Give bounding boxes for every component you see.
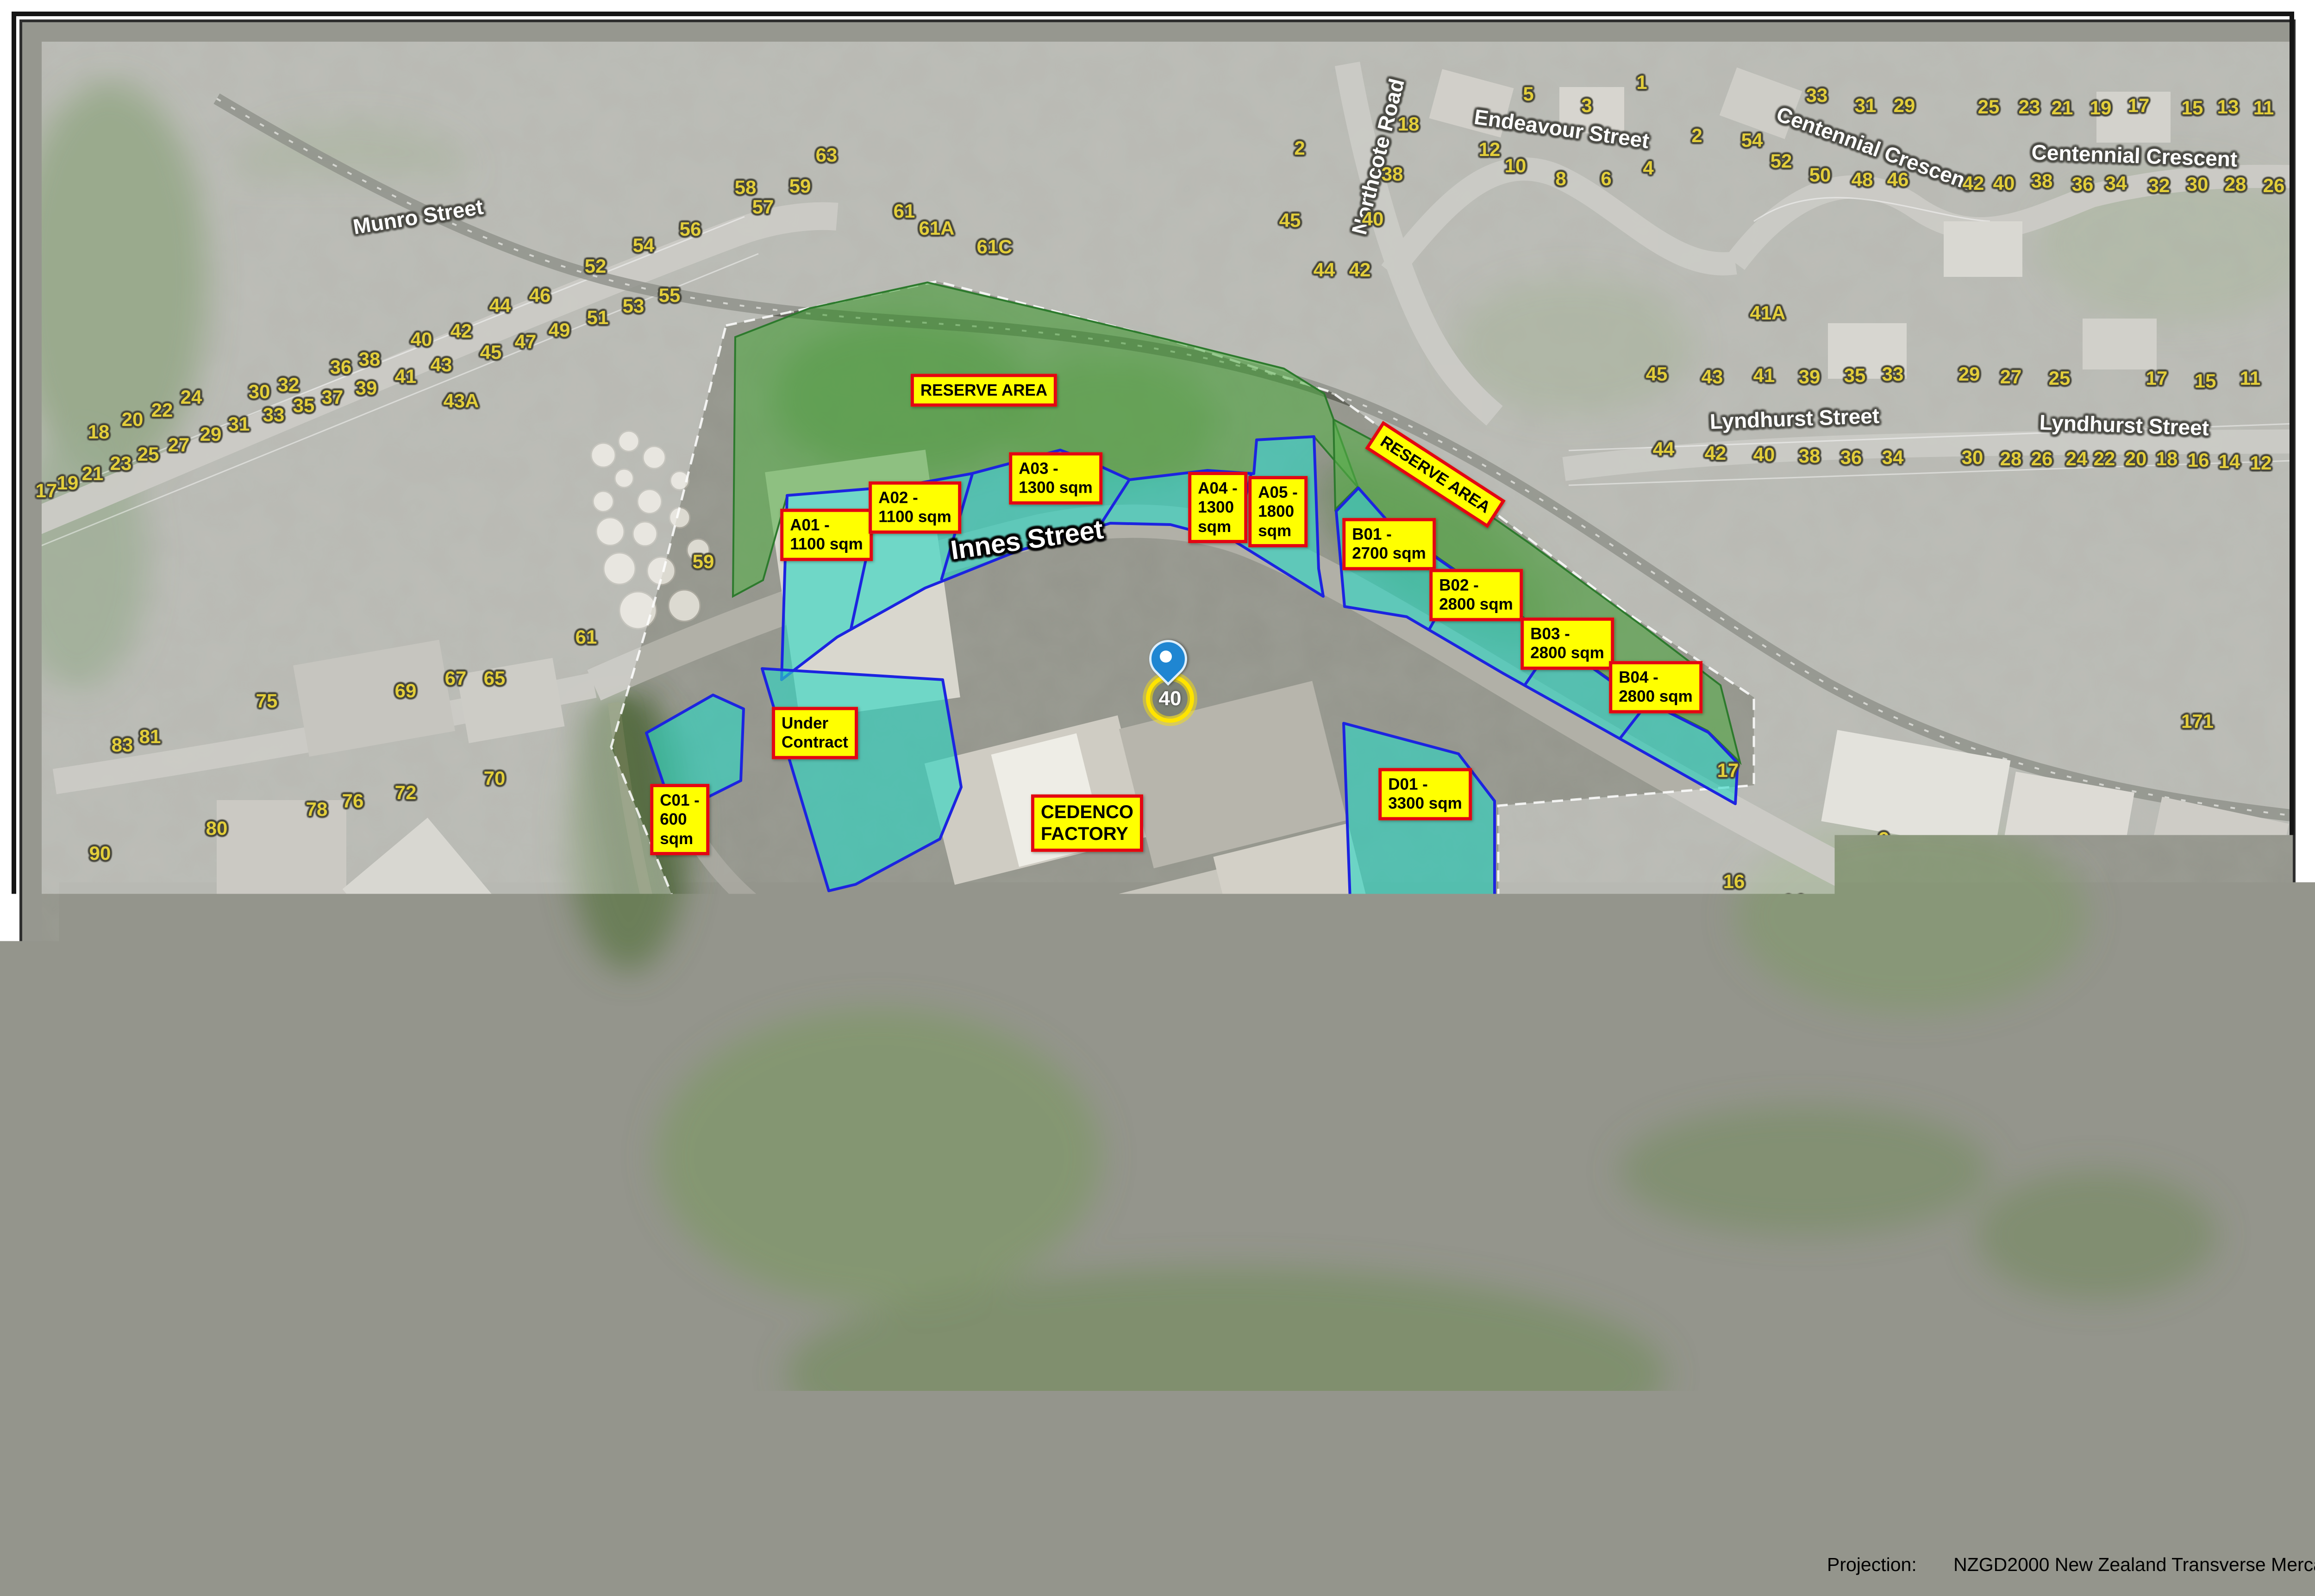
- date-label: Date:: [1827, 1513, 1872, 1535]
- created-by-label: Created by:: [1827, 1467, 1925, 1489]
- projection-row: Projection: NZGD2000 New Zealand Transve…: [1827, 1554, 2315, 1576]
- title-block-divider-2: [1785, 1396, 1788, 1572]
- scale-value: 2,257: [2100, 1424, 2147, 1446]
- scale-row: Indicative Map Scale: 1: 2,257 @ A3: [1827, 1424, 2259, 1446]
- title-block-divider-1: [1331, 1396, 1333, 1572]
- title-block: CEDENCO Sub-Division Master Plan Additio…: [19, 1394, 2296, 1575]
- north-arrow-icon: [2217, 1414, 2277, 1490]
- scale-label: Indicative Map Scale:: [1827, 1424, 2008, 1446]
- page-title: CEDENCO Sub-Division Master Plan: [221, 1423, 831, 1465]
- master-plan-document: Munro StreetNorthcote RoadEndeavour Stre…: [0, 0, 2315, 1596]
- projection-label: Projection:: [1827, 1554, 1917, 1576]
- scale-prefix: 1:: [2068, 1424, 2084, 1446]
- additional-notes-label: Additional Notes:: [1350, 1425, 1494, 1447]
- date-row: Date: 10/03/2026 11:21:14 AM: [1827, 1513, 2169, 1535]
- created-by-value: Civil Assist Ltd: [1963, 1467, 2085, 1489]
- page-border: [12, 12, 2294, 1579]
- date-value: 10/03/2026 11:21:14 AM: [1964, 1513, 2169, 1535]
- map-info-panel: Indicative Map Scale: 1: 2,257 @ A3 Crea…: [1805, 1396, 2296, 1572]
- created-by-row: Created by: Civil Assist Ltd: [1827, 1467, 2085, 1489]
- projection-value: NZGD2000 New Zealand Transverse Mercator: [1953, 1554, 2315, 1576]
